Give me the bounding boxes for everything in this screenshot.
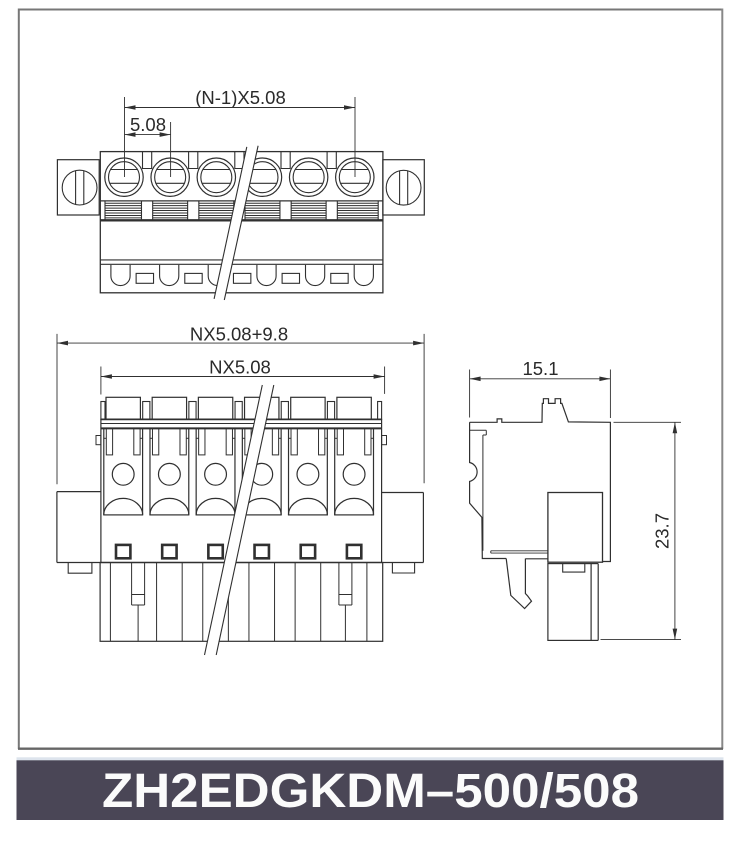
svg-text:15.1: 15.1 [522,358,558,379]
svg-text:ZH2EDGKDM–500/508: ZH2EDGKDM–500/508 [102,764,639,818]
svg-text:23.7: 23.7 [652,513,673,549]
svg-text:5.08: 5.08 [130,114,166,135]
svg-text:NX5.08+9.8: NX5.08+9.8 [190,323,288,344]
svg-text:NX5.08: NX5.08 [209,356,271,377]
svg-text:(N-1)X5.08: (N-1)X5.08 [195,87,285,108]
